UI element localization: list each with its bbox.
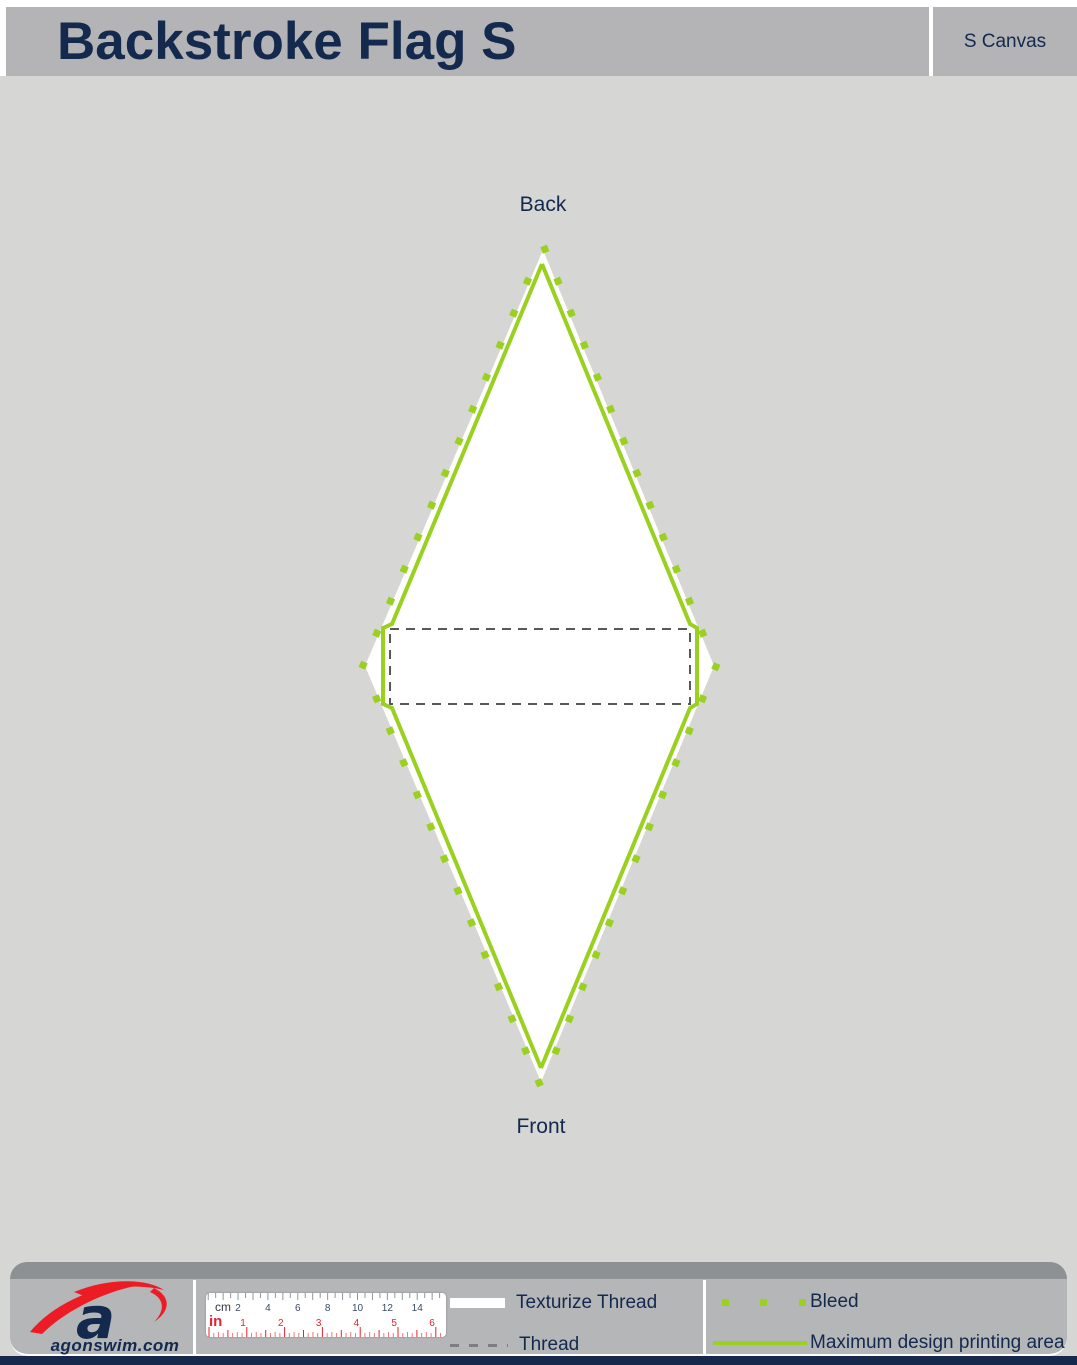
cm-number: 2 bbox=[235, 1303, 241, 1314]
thread-dash-swatch-icon bbox=[450, 1344, 508, 1347]
cm-unit-label: cm bbox=[215, 1300, 231, 1314]
max-print-line-swatch-icon bbox=[713, 1341, 807, 1345]
ruler-scale-icon: cm2468101214in123456 bbox=[206, 1293, 446, 1337]
bleed-dot bbox=[540, 245, 549, 254]
footer-panel: a agonswim.com cm2468101214in123456 Text… bbox=[10, 1262, 1067, 1356]
canvas-size-label: S Canvas bbox=[933, 7, 1077, 76]
brand-logo: a agonswim.com bbox=[28, 1276, 188, 1354]
legend-item-max-print: Maximum design printing area bbox=[713, 1332, 1065, 1354]
in-number: 2 bbox=[278, 1318, 284, 1329]
cm-number: 8 bbox=[325, 1303, 331, 1314]
cm-number: 10 bbox=[352, 1303, 364, 1314]
cm-number: 14 bbox=[412, 1303, 424, 1314]
legend-label: Maximum design printing area bbox=[810, 1332, 1065, 1354]
back-label: Back bbox=[463, 193, 623, 217]
in-number: 1 bbox=[240, 1318, 246, 1329]
cm-number: 12 bbox=[382, 1303, 394, 1314]
bottom-bar bbox=[0, 1356, 1077, 1365]
header-bar: Backstroke Flag S S Canvas bbox=[6, 7, 1077, 76]
texturize-thread-swatch-icon bbox=[450, 1298, 505, 1308]
bleed-dots-swatch-icon bbox=[722, 1299, 806, 1306]
cm-number: 4 bbox=[265, 1303, 271, 1314]
in-number: 5 bbox=[391, 1318, 397, 1329]
ruler: cm2468101214in123456 bbox=[206, 1293, 446, 1337]
in-number: 4 bbox=[354, 1318, 360, 1329]
logo-swoosh-arc bbox=[150, 1288, 167, 1322]
legend-item-bleed: Bleed bbox=[722, 1291, 859, 1313]
legend-label: Texturize Thread bbox=[516, 1292, 657, 1314]
in-number: 3 bbox=[316, 1318, 322, 1329]
legend-item-thread: Thread bbox=[450, 1334, 579, 1356]
cm-number: 6 bbox=[295, 1303, 301, 1314]
front-label: Front bbox=[461, 1115, 621, 1139]
legend-label: Bleed bbox=[810, 1291, 859, 1313]
page-title: Backstroke Flag S bbox=[57, 11, 517, 72]
texturize-thread-shape bbox=[365, 250, 714, 1082]
logo-text: agonswim.com bbox=[50, 1336, 180, 1356]
footer-divider-2 bbox=[703, 1280, 706, 1354]
in-number: 6 bbox=[429, 1318, 435, 1329]
bleed-dot bbox=[535, 1078, 544, 1087]
legend-item-texturize-thread: Texturize Thread bbox=[450, 1292, 657, 1314]
legend-label: Thread bbox=[519, 1334, 579, 1356]
footer-divider-1 bbox=[193, 1280, 196, 1354]
in-unit-label: in bbox=[209, 1313, 222, 1330]
